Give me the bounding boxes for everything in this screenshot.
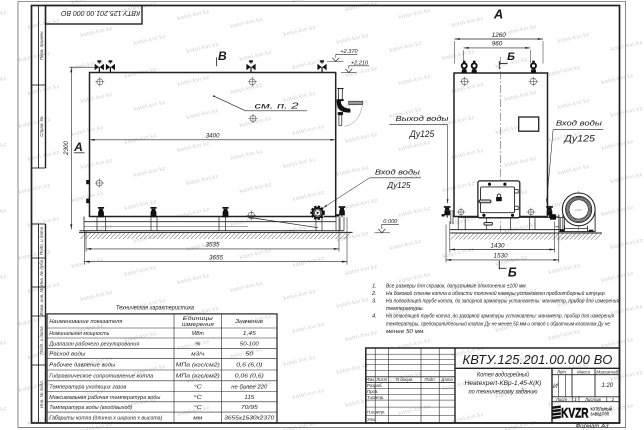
svg-text:МВт: МВт [192,331,204,337]
svg-text:Инв. № подл.: Инв. № подл. [39,380,44,408]
svg-text:Выход воды: Выход воды [396,114,450,123]
svg-text:И: И [553,383,558,390]
svg-text:мм: мм [193,416,202,422]
svg-text:менее 50 мм.: менее 50 мм. [386,329,425,335]
svg-text:На подводящей трубе котла, д: На подводящей трубе котла, до запорной а… [386,298,619,305]
svg-text:3655: 3655 [209,254,224,261]
svg-text:КВТУ.125.201.00.000 ВО: КВТУ.125.201.00.000 ВО [61,9,140,18]
svg-text:Лист: Лист [375,377,387,382]
svg-text:Взам. инв. №: Взам. инв. № [39,287,44,315]
svg-text:не более 220: не более 220 [231,384,268,390]
svg-text:3655х1530х2370: 3655х1530х2370 [224,416,275,422]
svg-text:Котел водогрейный: Котел водогрейный [477,371,529,379]
svg-text:Значение: Значение [235,319,264,325]
svg-text:Пров.: Пров. [367,389,378,394]
svg-text:2.: 2. [371,291,377,297]
svg-text:3400: 3400 [206,133,220,140]
svg-text:Ду125: Ду125 [563,133,596,144]
svg-text:N докум.: N докум. [396,377,413,382]
svg-text:м3/ч: м3/ч [191,352,204,358]
svg-text:Подп. и дата: Подп. и дата [39,326,44,355]
svg-text:1260: 1260 [492,32,507,39]
svg-text:960: 960 [492,41,503,48]
svg-text:0,06 (0,6): 0,06 (0,6) [235,374,264,380]
svg-text:МПа (кгс/см2): МПа (кгс/см2) [176,374,220,380]
svg-text:Расход воды: Расход воды [49,352,86,358]
svg-text:Б: Б [507,51,515,63]
svg-text:ЗАВОД РЭП: ЗАВОД РЭП [591,412,610,417]
svg-text:Гидравлическое сопротивление к: Гидравлическое сопротивление котла [49,374,154,380]
svg-text:Т.контр.: Т.контр. [367,395,384,400]
svg-text:Формат А3: Формат А3 [576,424,609,430]
svg-text:1.: 1. [372,283,377,289]
svg-text:На боковой стенке котла в обла: На боковой стенке котла в области топочн… [386,290,606,297]
svg-text:Б: Б [508,266,517,280]
svg-text:Габариты котла (длинна х ширин: Габариты котла (длинна х ширина х высота… [49,416,162,422]
svg-text:Масса: Масса [577,369,590,374]
svg-text:°С: °С [194,384,203,390]
svg-text:Техническая характеристика: Техническая характеристика [116,305,194,312]
svg-text:Ду125: Ду125 [409,129,435,139]
svg-text:°С: °С [194,395,203,401]
svg-text:Вход воды: Вход воды [375,167,421,176]
svg-text:Лит.: Лит. [556,369,567,374]
svg-text:КОТЕЛЬНЫЙ: КОТЕЛЬНЫЙ [591,406,613,411]
svg-text:Наименование показателя: Наименование показателя [49,319,122,325]
svg-text:Листов: Листов [584,397,601,402]
svg-text:А: А [493,7,503,22]
svg-text:1430: 1430 [490,242,505,249]
svg-text:КВТУ.125.201.00.000 ВО: КВТУ.125.201.00.000 ВО [463,352,613,367]
svg-text:Инв. № дубл.: Инв. № дубл. [39,259,44,287]
svg-text:Температура воды (вход/выход): Температура воды (вход/выход) [49,405,132,411]
svg-text:1530: 1530 [493,253,508,260]
svg-text:Лист: Лист [555,397,567,402]
svg-text:70/95: 70/95 [241,405,259,411]
svg-text:по техническому заданию: по техническому заданию [469,387,538,395]
svg-text:50: 50 [245,352,254,358]
svg-text:Максимальная рабочая температу: Максимальная рабочая температура воды [49,395,161,401]
svg-text:115: 115 [244,395,255,401]
svg-text:температуры, предохранительный: температуры, предохранительный клапан Ду… [386,320,610,327]
svg-text:KVZR: KVZR [561,405,589,421]
svg-text:температуры.: температуры. [386,306,424,312]
svg-text:3.: 3. [372,299,377,305]
svg-text:Рабочее давление воды: Рабочее давление воды [49,362,116,368]
svg-text:1,45: 1,45 [243,331,257,337]
svg-text:%: % [195,341,200,347]
svg-text:МПа (кгс/см2): МПа (кгс/см2) [176,362,220,368]
svg-text:50-100: 50-100 [240,341,260,347]
svg-text:Диапазон рабочего регулировани: Диапазон рабочего регулирования [48,341,139,347]
svg-text:измерения: измерения [182,322,214,328]
svg-text:Вход воды: Вход воды [556,118,603,127]
svg-text:0,6 (6,0): 0,6 (6,0) [236,362,262,368]
svg-text:Справ. №: Справ. № [39,116,44,137]
svg-text:А: А [73,140,83,154]
svg-text:2300: 2300 [63,141,70,156]
svg-text:Дата: Дата [440,377,453,382]
svg-text:На отводящей трубе котла ,до з: На отводящей трубе котла ,до запорной ар… [386,313,614,320]
svg-text:Подп. и дата: Подп. и дата [39,226,44,255]
svg-text:Heatexpert-КВр-1,45-К(К): Heatexpert-КВр-1,45-К(К) [465,380,542,387]
svg-text:°С: °С [194,405,203,411]
svg-text:3535: 3535 [205,242,220,249]
svg-text:В: В [218,49,227,63]
svg-text:1:20: 1:20 [601,383,613,389]
svg-text:КВЗР: КВЗР [575,208,582,212]
svg-text:Перв. примен.: Перв. примен. [39,30,44,60]
svg-text:Все размеры для справок, допус: Все размеры для справок, допустимые откл… [386,283,527,289]
svg-text:Масштаб: Масштаб [596,369,619,374]
svg-text:Подп.: Подп. [424,377,435,382]
svg-text:Ду125: Ду125 [387,181,411,190]
svg-text:Разраб.: Разраб. [367,383,383,388]
svg-text:Н.контр.: Н.контр. [367,410,385,415]
svg-text:Номинальная мощность: Номинальная мощность [49,331,109,337]
svg-text:Утв.: Утв. [367,417,377,422]
svg-text:Температура уходящих газов: Температура уходящих газов [49,384,126,390]
svg-text:см. п. 2: см. п. 2 [255,102,300,111]
svg-text:4.: 4. [372,314,377,320]
svg-text:Изм.: Изм. [366,377,375,382]
